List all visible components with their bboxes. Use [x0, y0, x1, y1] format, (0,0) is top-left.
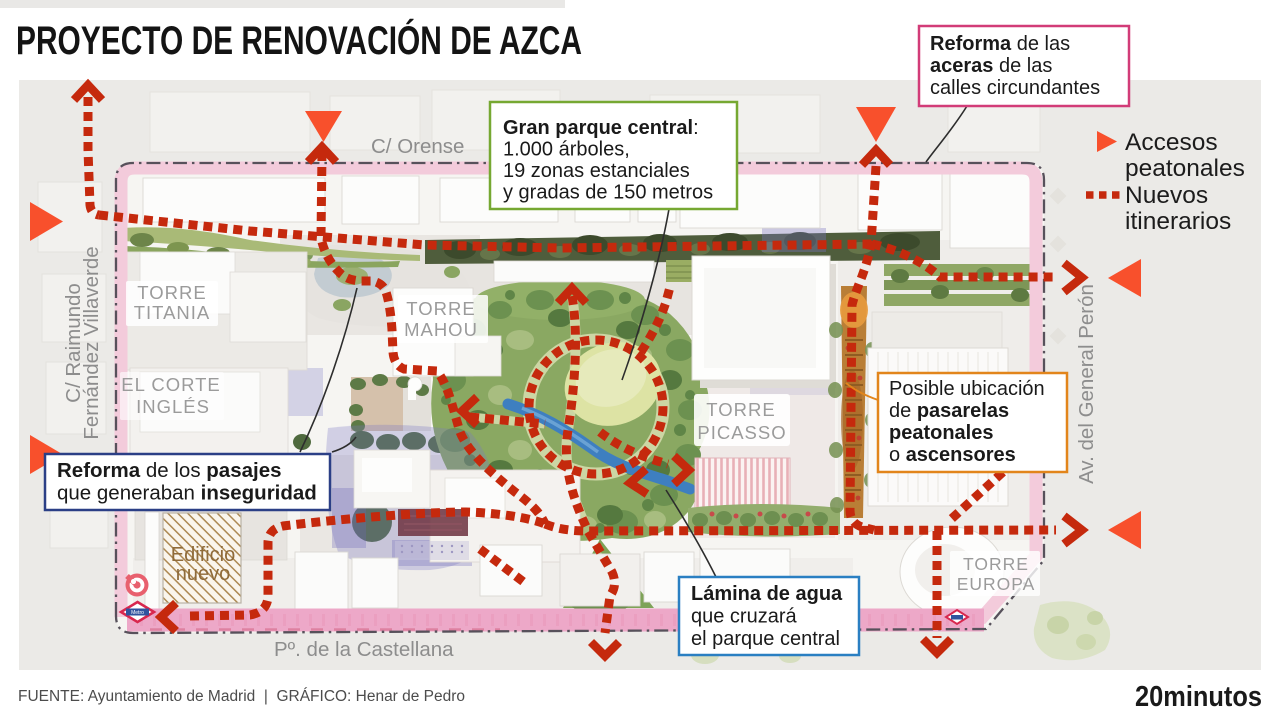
svg-text:Posible ubicación: Posible ubicación [889, 378, 1045, 400]
svg-text:TORRE: TORRE [137, 282, 206, 303]
svg-text:MAHOU: MAHOU [404, 319, 478, 340]
svg-text:Av. del General Perón: Av. del General Perón [1075, 284, 1098, 484]
svg-text:Metro: Metro [131, 610, 144, 616]
svg-text:Accesos: Accesos [1125, 129, 1218, 156]
svg-text:PROYECTO DE RENOVACIÓN DE AZCA: PROYECTO DE RENOVACIÓN DE AZCA [16, 17, 582, 63]
svg-text:aceras de las: aceras de las [930, 55, 1052, 77]
svg-text:Lámina de agua: Lámina de agua [691, 583, 843, 605]
svg-text:TITANIA: TITANIA [134, 302, 211, 323]
svg-text:que generaban inseguridad: que generaban inseguridad [57, 482, 317, 505]
svg-text:peatonales: peatonales [1125, 155, 1245, 182]
svg-text:el parque central: el parque central [691, 628, 840, 650]
svg-text:itinerarios: itinerarios [1125, 208, 1231, 235]
svg-text:TORRE: TORRE [963, 554, 1029, 574]
svg-text:y gradas de 150 metros: y gradas de 150 metros [503, 182, 713, 204]
svg-text:EL CORTE: EL CORTE [121, 374, 221, 395]
svg-text:C/ Orense: C/ Orense [371, 135, 464, 158]
svg-text:Reforma de los pasajes: Reforma de los pasajes [57, 459, 282, 482]
svg-text:INGLÉS: INGLÉS [136, 396, 210, 417]
svg-text:TORRE: TORRE [406, 298, 475, 319]
svg-text:Fernández Villaverde: Fernández Villaverde [80, 246, 103, 439]
svg-text:Pº. de la Castellana: Pº. de la Castellana [274, 638, 454, 661]
svg-text:calles circundantes: calles circundantes [930, 77, 1100, 99]
svg-text:nuevo: nuevo [176, 563, 231, 585]
svg-text:de pasarelas: de pasarelas [889, 400, 1009, 422]
svg-text:que cruzará: que cruzará [691, 606, 797, 628]
svg-text:Reforma de las: Reforma de las [930, 33, 1070, 55]
svg-text:Gran parque central:: Gran parque central: [503, 117, 699, 139]
svg-text:o ascensores: o ascensores [889, 444, 1016, 466]
svg-text:TORRE: TORRE [706, 399, 775, 420]
svg-text:19 zonas estanciales: 19 zonas estanciales [503, 160, 690, 182]
svg-text:FUENTE: Ayuntamiento de Madrid: FUENTE: Ayuntamiento de Madrid | GRÁFICO… [18, 688, 465, 705]
svg-text:PICASSO: PICASSO [697, 422, 786, 443]
svg-text:1.000 árboles,: 1.000 árboles, [503, 139, 630, 161]
svg-text:peatonales: peatonales [889, 422, 993, 444]
svg-text:Nuevos: Nuevos [1125, 182, 1208, 209]
svg-text:EUROPA: EUROPA [957, 574, 1036, 594]
svg-text:20minutos: 20minutos [1135, 681, 1262, 713]
